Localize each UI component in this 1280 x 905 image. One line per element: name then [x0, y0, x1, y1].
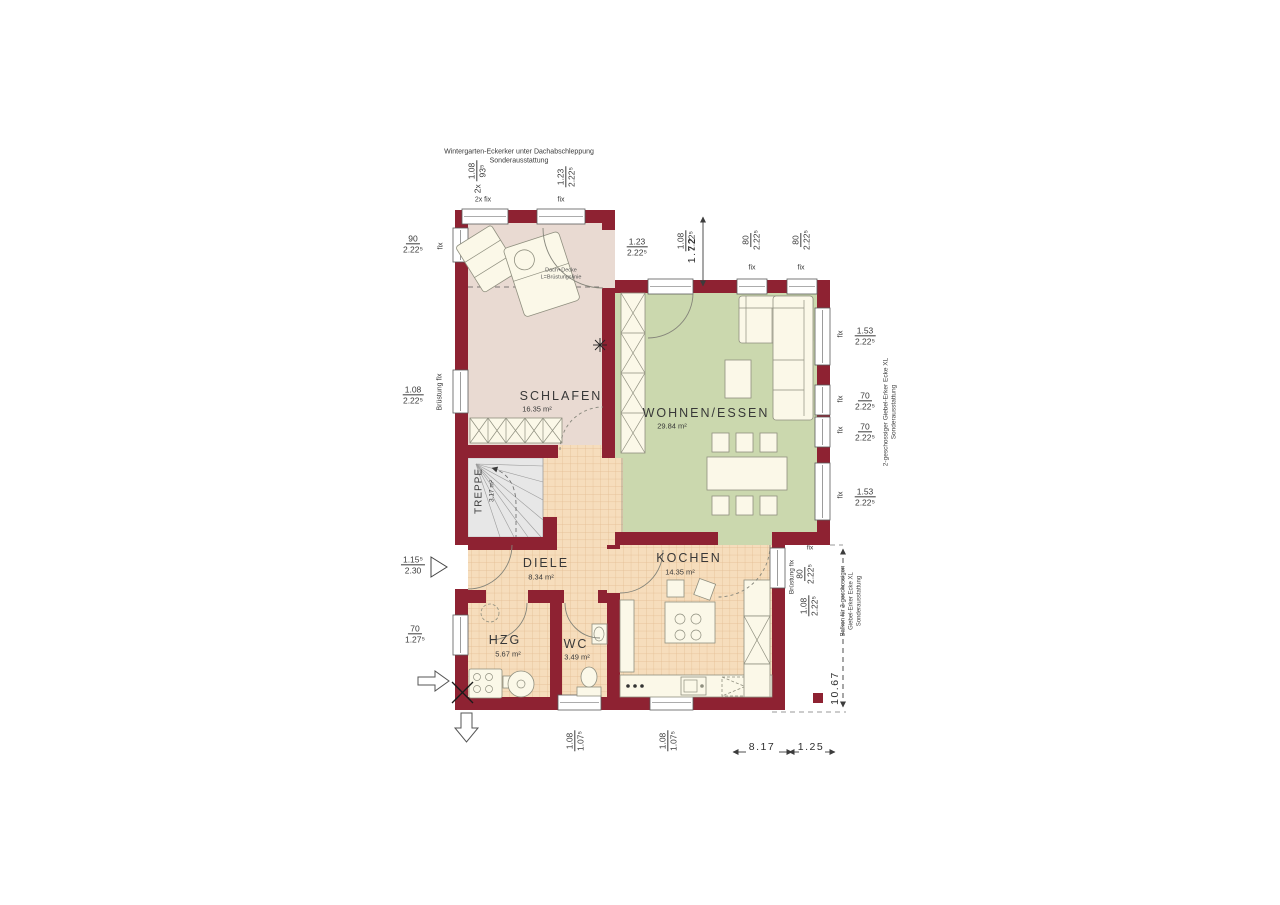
top-note-line1: Wintergarten-Eckerker unter Dachabschlep…: [444, 149, 594, 156]
room-area-wohnen: 29.84 m²: [657, 422, 687, 431]
room-label-hzg: HZG: [489, 633, 521, 647]
dim-erker-depth: 1.72: [686, 237, 698, 263]
wardrobe: [470, 418, 562, 443]
chair: [736, 496, 753, 515]
window-label-fix: fix: [807, 545, 814, 552]
dim-entrance-door: 1.15⁵2.30: [401, 554, 425, 575]
coffee-table: [725, 360, 751, 398]
chair: [712, 433, 729, 452]
window-label-fix: fix: [838, 427, 845, 434]
dim-window-left-a: 902.22⁵: [403, 233, 423, 254]
shelf-unit: [621, 293, 645, 453]
dim-balkon-width: 1.25: [798, 741, 824, 753]
window-label-fix: fix: [749, 265, 756, 272]
kitchen-stool: [667, 580, 684, 597]
door-dimension-arrow: [431, 557, 447, 577]
balcony-post: [813, 693, 823, 703]
kitchen-counter-left: [620, 600, 634, 672]
top-note-line2: Sonderausstattung: [490, 158, 549, 165]
kitchen-tall-cabinets: [744, 580, 770, 697]
window: [815, 463, 830, 520]
dim-window-right-d: 1.532.22⁵: [855, 486, 876, 507]
room-area-hzg: 5.67 m²: [495, 650, 520, 659]
window: [770, 548, 785, 588]
schlafen-door-opening: [602, 230, 615, 288]
room-label-schlafen: SCHLAFEN: [520, 389, 603, 403]
room-label-treppe: TREPPE: [474, 468, 485, 514]
dim-window-top-g: 802.22⁵: [790, 230, 811, 250]
room-area-wc: 3.49 m²: [564, 653, 589, 662]
window: [737, 279, 767, 294]
dim-window-right-f: 1.082.22⁵: [798, 596, 819, 617]
dim-window-bottom-a: 1.081.07⁵: [564, 731, 585, 752]
window: [815, 417, 830, 447]
kitchen-door-opening: [607, 549, 620, 593]
dim-total-depth: 10.67: [829, 671, 841, 705]
dining-table: [707, 457, 787, 490]
schlafen-diele-opening: [558, 445, 602, 458]
room-area-schlafen: 16.35 m²: [522, 405, 552, 414]
floor-plan-drawing: [0, 0, 1280, 905]
window: [787, 279, 817, 294]
dim-window-left-d: 701.27⁵: [405, 623, 425, 644]
chair: [760, 433, 777, 452]
wc-sink: [592, 624, 607, 644]
wc-door-opening: [564, 590, 598, 603]
dim-window-right-c: 702.22⁵: [855, 421, 875, 442]
room-area-treppe: 3.17 m²: [489, 480, 496, 502]
chair: [736, 433, 753, 452]
dim-window-top-b: 1.232.22⁵: [555, 167, 576, 188]
room-area-diele: 8.34 m²: [528, 573, 553, 582]
boiler-tank: [508, 671, 534, 697]
dim-total-width: 8.17: [749, 741, 775, 753]
bedroom-note-line1: Dach+Decke: [545, 268, 577, 275]
window-terrace-door: [648, 279, 693, 294]
window: [453, 370, 468, 413]
window-label-bruestung-fix: Brüstung fix: [437, 374, 444, 411]
exit-arrow-down: [455, 713, 478, 742]
chair: [760, 496, 777, 515]
dim-terrace-door: 1.232.22⁵: [627, 236, 648, 257]
window: [537, 209, 585, 224]
window-label-fix: fix: [838, 396, 845, 403]
chair: [712, 496, 729, 515]
lamp-symbol: [593, 338, 607, 352]
wall-wohnen-kitchen: [615, 532, 718, 545]
room-label-kochen: KOCHEN: [656, 551, 721, 565]
dim-window-left-b: 1.082.22⁵: [403, 384, 424, 405]
window-label-fix: fix: [438, 243, 445, 250]
window-label-fix: fix: [798, 265, 805, 272]
hzg-door-opening: [486, 590, 528, 603]
kitchen-island: [665, 602, 715, 643]
room-area-kochen: 14.35 m²: [665, 568, 695, 577]
dining-set: [707, 433, 787, 515]
window: [462, 209, 508, 224]
window-label-fix: fix: [838, 331, 845, 338]
window-label-2xfix: 2x fix: [475, 197, 491, 204]
dim-window-2x: 2x 1.0893⁵: [466, 161, 487, 194]
window: [815, 308, 830, 365]
balkon-note: Balkon für 2-geschossigenGiebel-Erker Ec…: [840, 566, 863, 637]
dim-window-right-e: 802.22⁵: [794, 564, 815, 584]
bedroom-note-line2: L=Brüstungslinie: [541, 275, 582, 282]
dim-window-top-f: 802.22⁵: [740, 230, 761, 250]
wohnen-kitchen-opening: [718, 532, 772, 545]
room-label-wc: WC: [564, 637, 589, 651]
room-label-diele: DIELE: [523, 556, 569, 570]
wall-treppe-stub: [543, 517, 557, 550]
window: [558, 695, 601, 710]
erker-note: 2-geschossiger Giebel-Erker Ecke XLSonde…: [883, 358, 900, 466]
wall-step: [772, 532, 830, 545]
window: [815, 385, 830, 415]
entrance-arrow-right: [418, 671, 449, 691]
dim-window-right-a: 1.532.22⁵: [855, 325, 876, 346]
window-label-fix: fix: [558, 197, 565, 204]
wall-treppe-bottom: [455, 537, 557, 550]
window: [453, 615, 468, 655]
floor-plan-canvas: Wintergarten-Eckerker unter Dachabschlep…: [0, 0, 1280, 905]
entrance-opening: [455, 545, 468, 589]
room-label-wohnen: WOHNEN/ESSEN: [643, 406, 770, 420]
wall-hzg-wc-divider: [550, 590, 562, 710]
dim-window-bottom-b: 1.081.07⁵: [657, 731, 678, 752]
window-label-fix: fix: [838, 492, 845, 499]
dim-window-right-b: 702.22⁵: [855, 390, 875, 411]
